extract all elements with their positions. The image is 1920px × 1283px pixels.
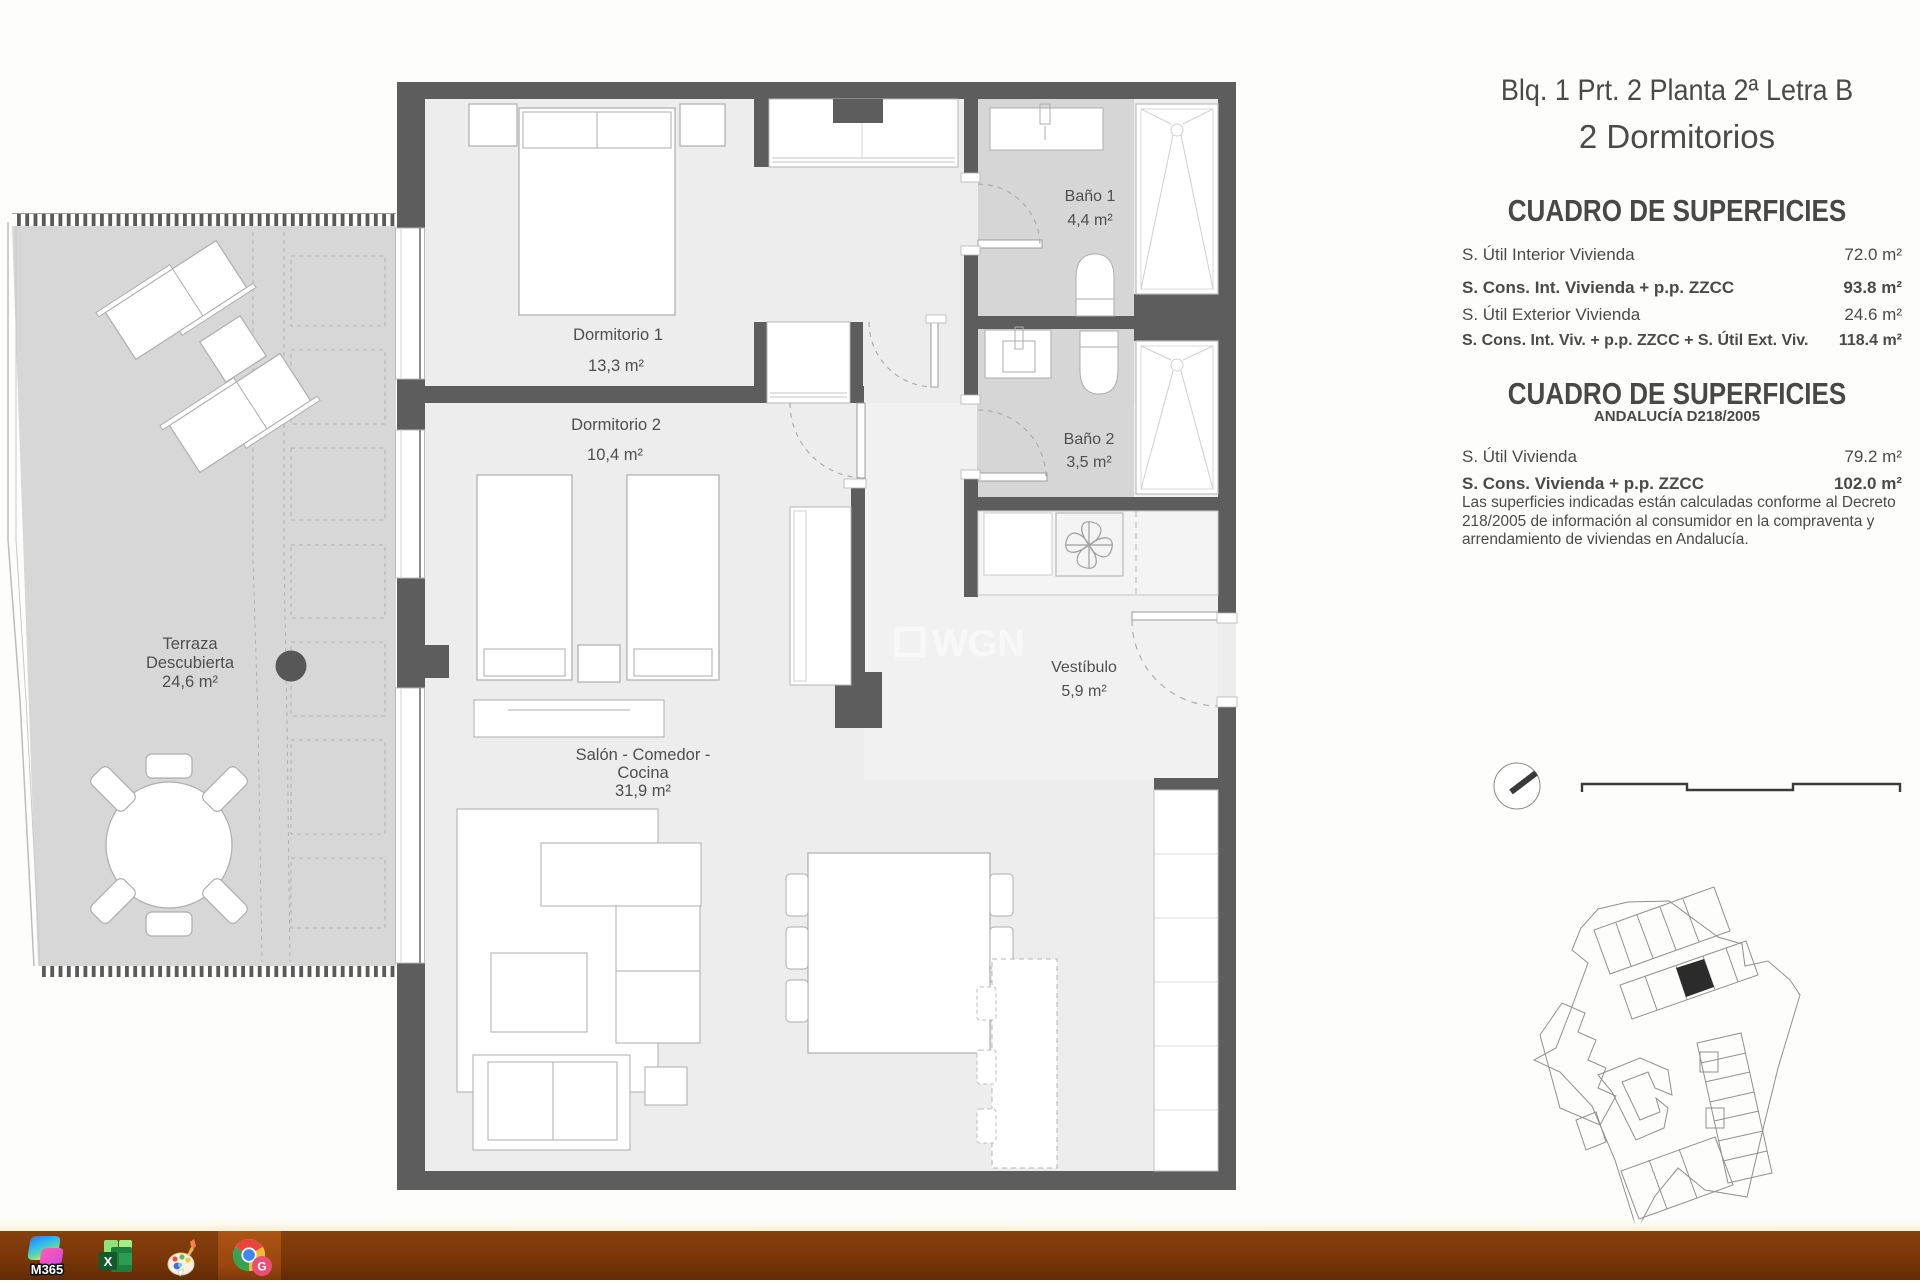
svg-text:10,4 m²: 10,4 m²: [587, 446, 643, 464]
svg-text:Baño 1: Baño 1: [1065, 188, 1116, 205]
svg-text:Dormitorio 1: Dormitorio 1: [573, 326, 663, 344]
svg-text:Vestíbulo: Vestíbulo: [1051, 659, 1117, 676]
svg-text:Descubierta: Descubierta: [146, 654, 235, 672]
svg-text:Baño 2: Baño 2: [1064, 431, 1115, 448]
svg-text:Salón - Comedor -: Salón - Comedor -: [576, 746, 711, 764]
svg-text:X: X: [104, 1254, 113, 1269]
svg-text:Terraza: Terraza: [162, 635, 218, 653]
svg-text:G: G: [257, 1260, 266, 1274]
svg-text:Dormitorio 2: Dormitorio 2: [571, 416, 661, 434]
svg-text:WGN: WGN: [932, 623, 1025, 665]
svg-text:Cocina: Cocina: [617, 764, 669, 782]
svg-text:13,3 m²: 13,3 m²: [588, 357, 644, 375]
svg-text:3,5 m²: 3,5 m²: [1066, 454, 1112, 471]
svg-text:4,4 m²: 4,4 m²: [1067, 212, 1113, 229]
svg-text:31,9 m²: 31,9 m²: [615, 782, 671, 800]
svg-text:24,6 m²: 24,6 m²: [162, 673, 218, 691]
svg-text:M365: M365: [31, 1262, 64, 1276]
svg-text:5,9 m²: 5,9 m²: [1061, 683, 1107, 700]
